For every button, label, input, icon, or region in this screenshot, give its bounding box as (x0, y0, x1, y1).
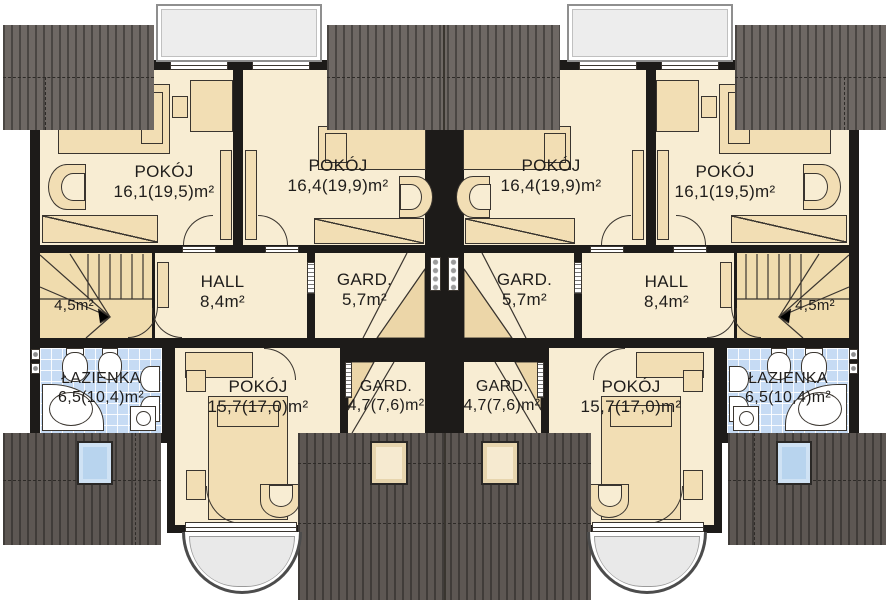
roof-break-line (735, 77, 886, 78)
chimney-shaft-icon (448, 257, 459, 291)
chair-icon (172, 96, 188, 118)
wardrobe-icon (465, 218, 575, 244)
wardrobe-icon (731, 215, 847, 243)
armchair-icon (260, 484, 300, 518)
balcony-door-window (592, 522, 704, 532)
window (265, 246, 299, 253)
room-name: HALL (645, 272, 689, 292)
room-area: 15,7(17,0)m² (581, 397, 682, 417)
room-label-gard-lower-right: GARD. 4,7(7,6)m² (462, 378, 542, 416)
room-name: GARD. (476, 378, 528, 397)
room-name: POKÓJ (308, 156, 367, 176)
armchair-seat-icon (269, 485, 293, 507)
room-area: 5,7m² (342, 290, 387, 310)
skylight-window (370, 441, 408, 485)
room-area: 4,5m² (54, 297, 94, 315)
wardrobe-icon (42, 215, 158, 243)
nightstand-icon (186, 470, 206, 500)
room-label-hall-right: HALL 8,4m² (604, 272, 729, 312)
room-label-gard-lower-left: GARD. 4,7(7,6)m² (346, 378, 426, 416)
room-label-gard-upper-left: GARD. 5,7m² (312, 270, 417, 310)
room-name: HALL (201, 272, 245, 292)
dormer-right (567, 4, 733, 62)
washer-icon (733, 406, 759, 431)
floor-plan: POKÓJ 16,1(19,5)m² POKÓJ 16,4(19,9)m² PO… (0, 0, 889, 600)
balcony-door-window (185, 522, 297, 532)
room-area: 4,5m² (795, 297, 835, 315)
room-label-pokoj-lower-right: POKÓJ 15,7(17,0)m² (545, 377, 717, 417)
window (661, 61, 719, 70)
wardrobe-icon (314, 218, 424, 244)
room-name: POKÓJ (228, 377, 287, 397)
room-area: 5,7m² (502, 290, 547, 310)
room-name: POKÓJ (601, 377, 660, 397)
washer-drum-icon (136, 411, 151, 426)
nightstand-icon (683, 470, 703, 500)
room-label-pokoj-top-center-right: POKÓJ 16,4(19,9)m² (465, 156, 637, 196)
room-name: POKÓJ (134, 162, 193, 182)
window (170, 61, 228, 70)
room-label-bathroom-right: ŁAZIENKA 6,5(10,4)m² (727, 370, 849, 408)
vent-grille-icon (31, 349, 40, 360)
room-label-hall-left: HALL 8,4m² (160, 272, 285, 312)
window (252, 61, 310, 70)
skylight-window (481, 441, 519, 485)
dormer-left (156, 4, 322, 62)
room-area: 16,1(19,5)m² (114, 182, 215, 202)
room-area: 4,7(7,6)m² (464, 397, 541, 416)
room-name: POKÓJ (695, 162, 754, 182)
vent-grille-icon (849, 363, 858, 374)
roof-break-line (754, 433, 755, 545)
vent-grille-icon (31, 363, 40, 374)
room-label-pokoj-top-center-left: POKÓJ 16,4(19,9)m² (252, 156, 424, 196)
roof-break-line (45, 77, 46, 130)
roof-section-top-left (3, 25, 154, 130)
room-area: 16,4(19,9)m² (288, 176, 389, 196)
roof-section-top-center (327, 25, 560, 130)
roof-break-line (844, 77, 845, 130)
room-label-pokoj-lower-left: POKÓJ 15,7(17,0)m² (172, 377, 344, 417)
roof-ridge-line (443, 25, 445, 130)
desk-icon (656, 80, 699, 132)
room-area: 15,7(17,0)m² (208, 397, 309, 417)
washer-drum-icon (739, 411, 754, 426)
room-name: ŁAZIENKA (748, 370, 828, 389)
room-label-pokoj-top-right: POKÓJ 16,1(19,5)m² (639, 162, 811, 202)
room-name: GARD. (360, 378, 412, 397)
window (590, 246, 624, 253)
room-area: 16,1(19,5)m² (675, 182, 776, 202)
roof-break-line (3, 77, 154, 78)
roof-party-line (444, 433, 446, 600)
room-name: POKÓJ (521, 156, 580, 176)
chimney-shaft-icon (430, 257, 441, 291)
window (182, 246, 216, 253)
vent-grille-icon (849, 349, 858, 360)
window (579, 61, 637, 70)
roof-section-top-right (735, 25, 886, 130)
room-area: 6,5(10,4)m² (58, 389, 144, 408)
room-label-bathroom-left: ŁAZIENKA 6,5(10,4)m² (40, 370, 162, 408)
balcony-right (587, 532, 707, 594)
armchair-seat-icon (598, 485, 622, 507)
window (673, 246, 707, 253)
room-name: GARD. (497, 270, 552, 290)
armchair-icon (589, 484, 629, 518)
balcony-left (182, 532, 302, 594)
room-name: ŁAZIENKA (61, 370, 141, 389)
room-area: 4,7(7,6)m² (348, 397, 425, 416)
room-name: GARD. (337, 270, 392, 290)
room-area: 8,4m² (200, 292, 245, 312)
room-area: 8,4m² (644, 292, 689, 312)
skylight-window (776, 441, 812, 485)
room-area: 6,5(10,4)m² (745, 389, 831, 408)
desk-icon (190, 80, 233, 132)
chair-icon (701, 96, 717, 118)
room-label-gard-upper-right: GARD. 5,7m² (472, 270, 577, 310)
room-label-stairs-left: 4,5m² (42, 297, 106, 315)
room-label-pokoj-top-left: POKÓJ 16,1(19,5)m² (78, 162, 250, 202)
washer-icon (130, 406, 156, 431)
room-label-stairs-right: 4,5m² (783, 297, 847, 315)
room-area: 16,4(19,9)m² (501, 176, 602, 196)
skylight-window (77, 441, 113, 485)
roof-section-bottom-center (298, 433, 591, 600)
roof-break-line (135, 433, 136, 545)
